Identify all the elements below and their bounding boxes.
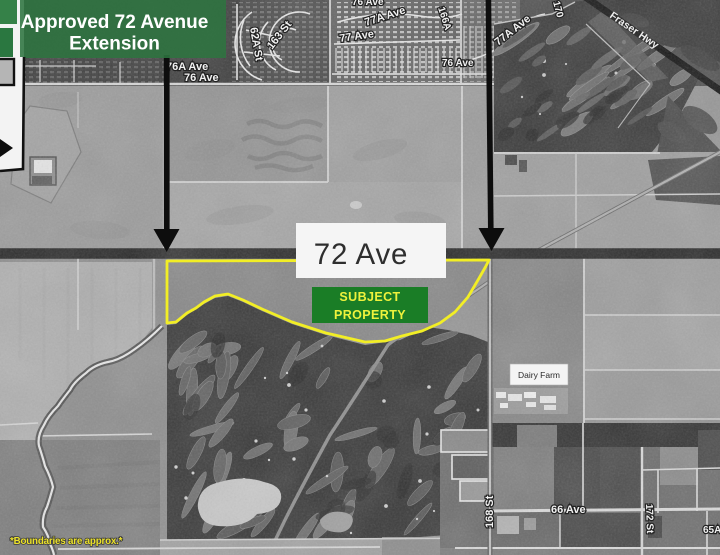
svg-text:172 St: 172 St xyxy=(643,504,655,534)
svg-text:65A: 65A xyxy=(703,525,720,536)
svg-text:72 Ave: 72 Ave xyxy=(314,238,408,271)
svg-text:76 Ave: 76 Ave xyxy=(442,58,474,69)
svg-text:168 St: 168 St xyxy=(484,495,496,528)
svg-text:Extension: Extension xyxy=(69,34,160,55)
svg-text:Approved 72 Avenue: Approved 72 Avenue xyxy=(21,12,209,33)
svg-text:76 Ave: 76 Ave xyxy=(352,0,384,8)
svg-text:Dairy Farm: Dairy Farm xyxy=(518,370,560,380)
svg-text:66 Ave: 66 Ave xyxy=(551,504,586,516)
svg-text:*Boundaries are approx.*: *Boundaries are approx.* xyxy=(10,536,123,547)
svg-text:SUBJECT: SUBJECT xyxy=(339,290,400,304)
svg-text:76 Ave: 76 Ave xyxy=(184,72,219,84)
svg-text:PROPERTY: PROPERTY xyxy=(334,308,406,322)
